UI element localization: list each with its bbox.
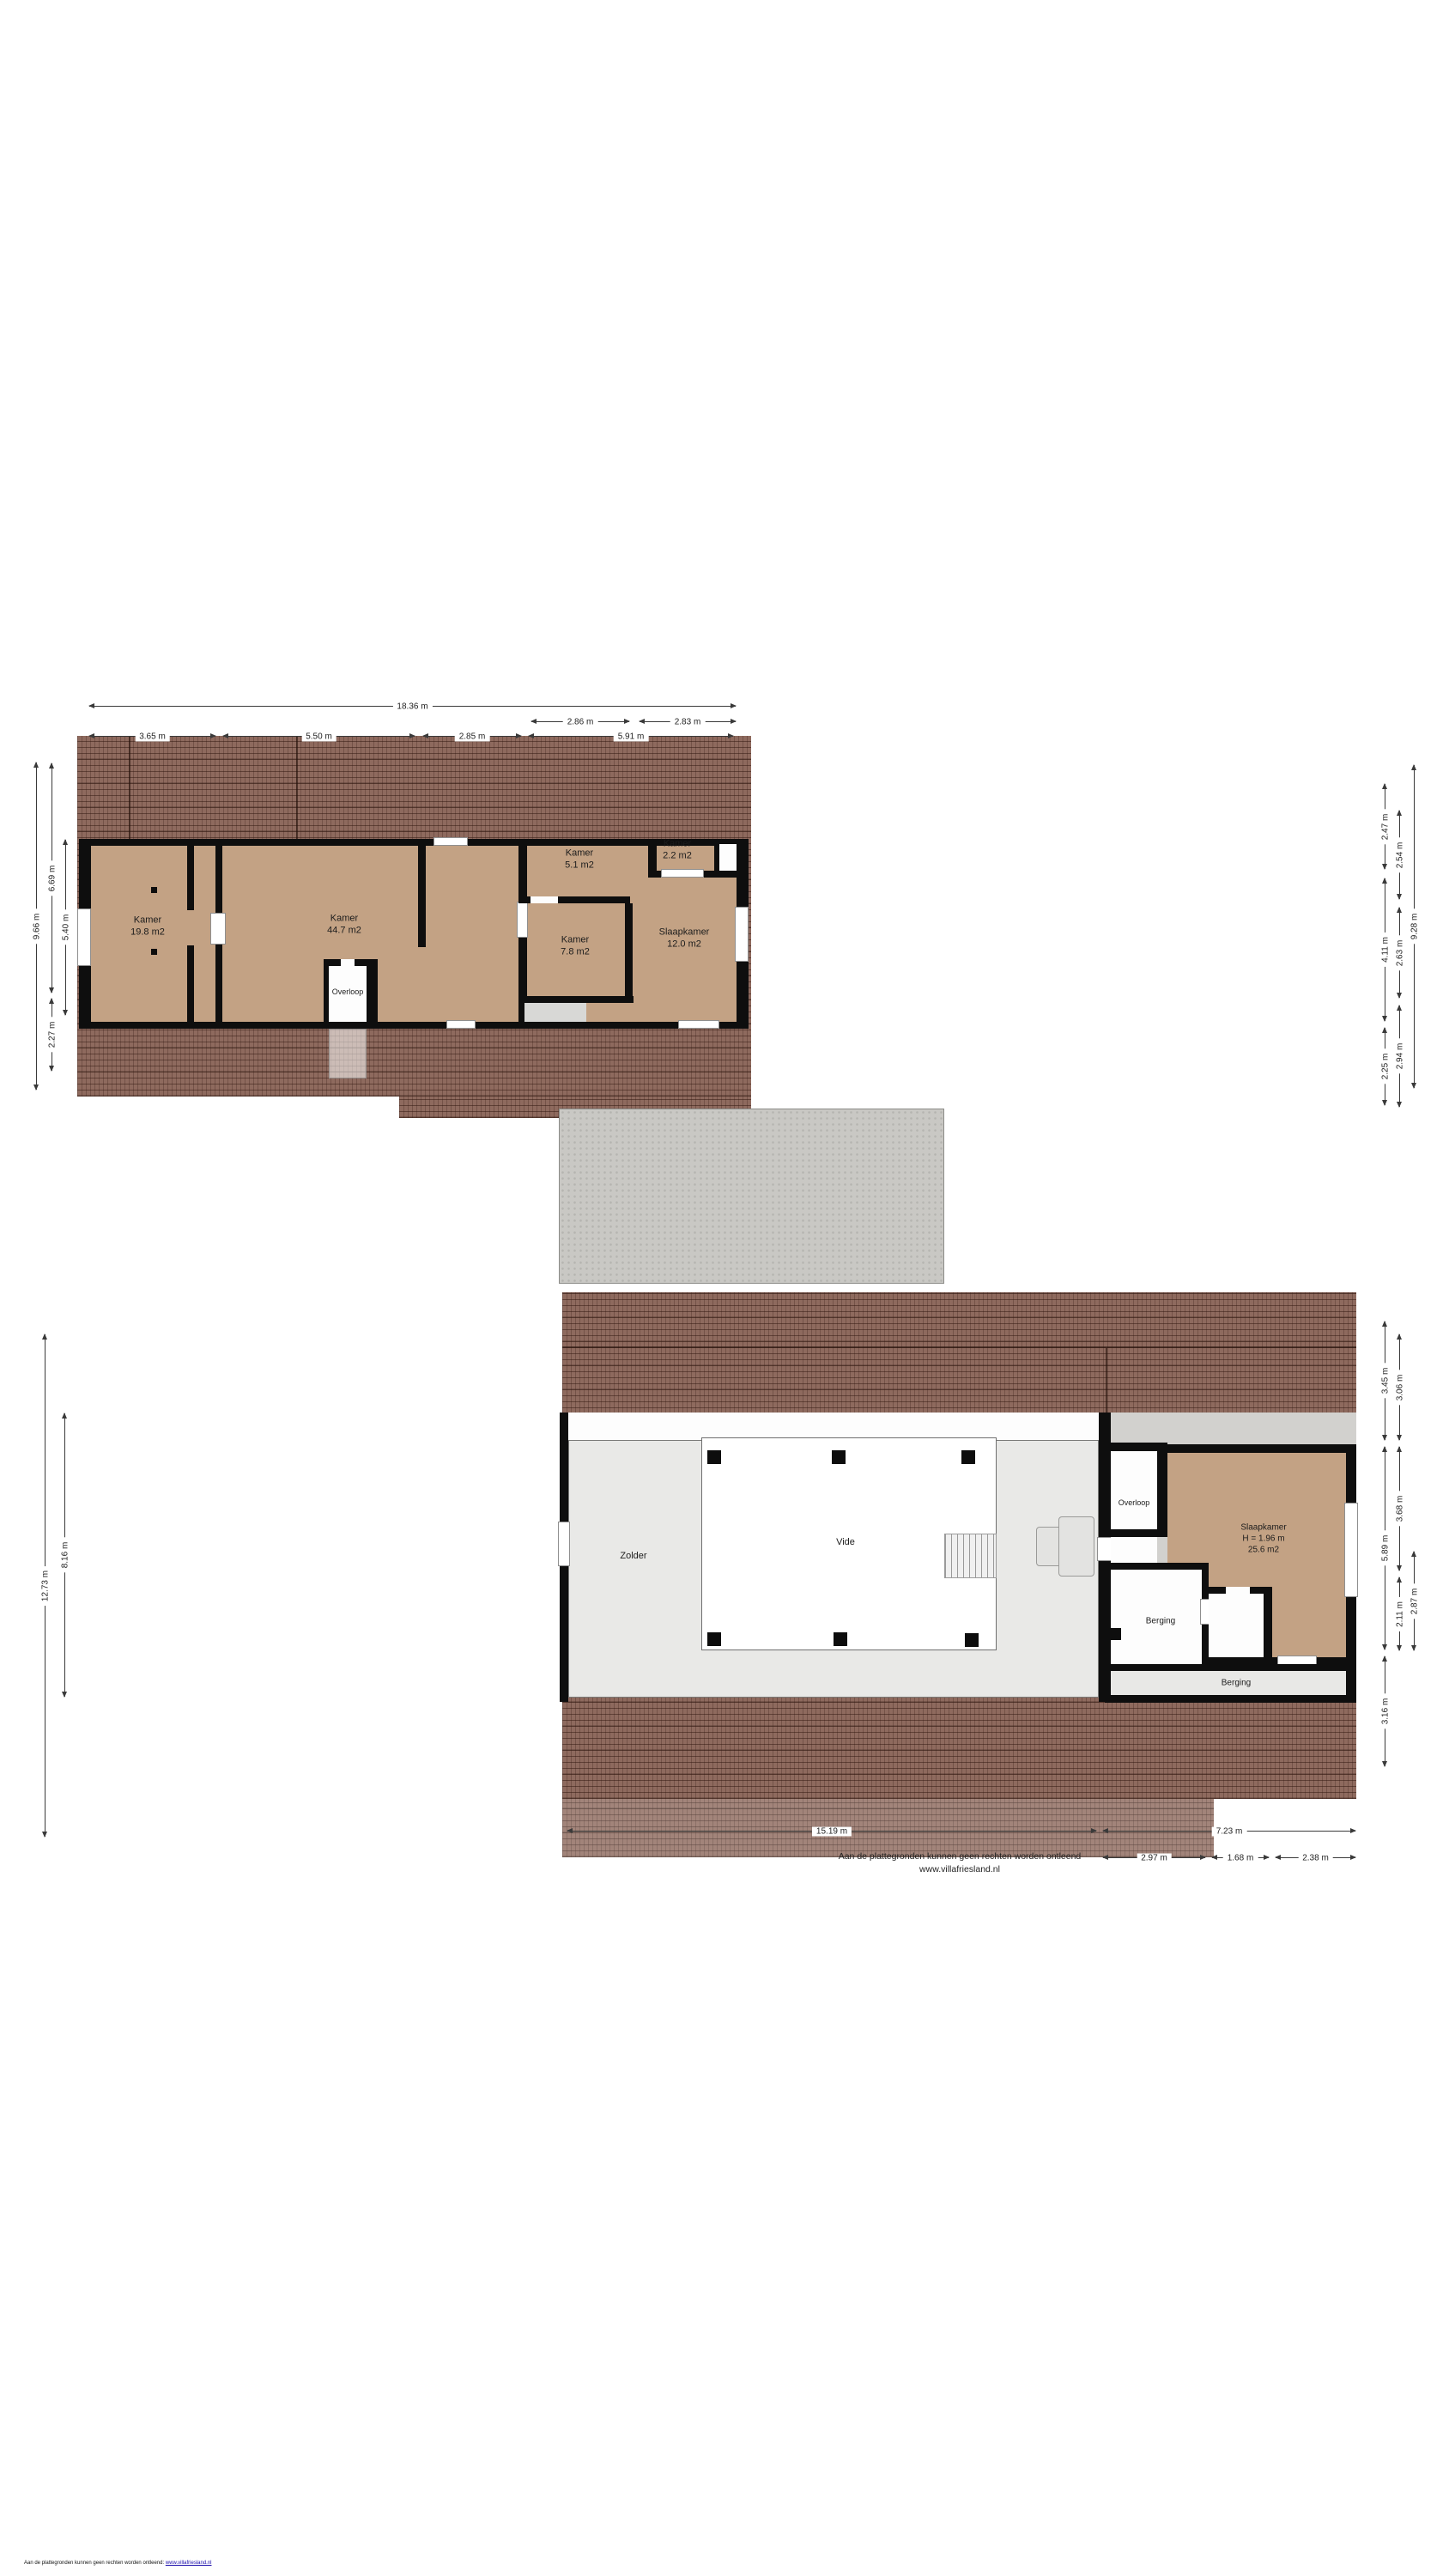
dim-right: 3.16 m	[1379, 1656, 1391, 1767]
wall	[79, 1022, 749, 1029]
dim-left: 6.69 m	[46, 762, 58, 993]
room-label-slaapkamer-12: Slaapkamer 12.0 m2	[659, 927, 710, 951]
dim-right: 5.89 m	[1379, 1446, 1391, 1650]
post	[151, 887, 157, 893]
window	[446, 1020, 476, 1029]
door-opening	[530, 896, 558, 903]
window	[678, 1020, 719, 1029]
room-small	[1209, 1594, 1264, 1664]
dim-left: 2.27 m	[46, 998, 58, 1072]
post	[965, 1633, 979, 1647]
cupboard	[1058, 1516, 1094, 1577]
window	[558, 1522, 570, 1566]
room-label-overloop-lower: Overloop	[1119, 1498, 1150, 1509]
dim-right: 2.11 m	[1394, 1577, 1405, 1651]
dim-right: 2.63 m	[1394, 907, 1405, 999]
dim-right: 2.54 m	[1394, 810, 1405, 900]
room-label-kamer-5-1: Kamer 5.1 m2	[565, 848, 594, 872]
post	[707, 1632, 721, 1646]
dim-right: 4.11 m	[1379, 878, 1391, 1022]
post	[834, 1632, 847, 1646]
wall	[1157, 1444, 1346, 1453]
window	[517, 902, 528, 938]
dim-bottom: 7.23 m	[1102, 1826, 1356, 1837]
roof-ridge-line	[562, 1346, 1356, 1348]
website-link: www.villafriesland.nl	[166, 2561, 212, 2566]
dim-top-sub: 5.50 m	[222, 731, 415, 742]
disclaimer-text: Aan de plattegronden kunnen geen rechten…	[839, 1851, 1082, 1862]
room-label-zolder: Zolder	[620, 1550, 646, 1562]
dim-bottom-sub: 2.38 m	[1275, 1852, 1356, 1863]
dim-top-sub: 2.83 m	[639, 716, 737, 727]
dim-top-total: 18.36 m	[88, 701, 737, 712]
wall-stub	[1111, 1628, 1121, 1640]
wall	[625, 903, 633, 999]
dim-bottom: 15.19 m	[567, 1826, 1097, 1837]
wall	[215, 846, 222, 913]
stairs-ghost	[329, 1029, 367, 1078]
website-text: www.villafriesland.nl	[919, 1864, 1000, 1874]
wall	[518, 844, 527, 902]
dim-bottom-sub: 1.68 m	[1211, 1852, 1270, 1863]
roof-ridge-line	[1106, 1348, 1107, 1413]
dim-left: 9.66 m	[31, 762, 42, 1091]
door	[210, 913, 226, 945]
wall-niche	[719, 844, 737, 871]
wall	[324, 964, 329, 1022]
dim-right: 2.47 m	[1379, 783, 1391, 870]
room-label-berging-2: Berging	[1222, 1678, 1251, 1689]
concrete-area	[559, 1109, 944, 1284]
room-label-berging-1: Berging	[1146, 1616, 1175, 1627]
wall	[1099, 1561, 1111, 1702]
dim-right: 3.06 m	[1394, 1334, 1405, 1441]
dim-left: 12.73 m	[39, 1334, 51, 1838]
wall	[215, 945, 222, 1022]
dim-right: 3.68 m	[1394, 1446, 1405, 1571]
dim-right: 2.87 m	[1409, 1551, 1420, 1651]
dim-left: 5.40 m	[60, 839, 71, 1016]
wall	[1111, 1529, 1167, 1537]
dim-right: 2.94 m	[1394, 1005, 1405, 1108]
window	[433, 837, 468, 846]
dim-top-sub: 3.65 m	[88, 731, 216, 742]
wall	[1107, 1563, 1209, 1570]
dim-right: 2.25 m	[1379, 1027, 1391, 1106]
door-opening	[341, 959, 355, 966]
post	[961, 1450, 975, 1464]
dim-right: 3.45 m	[1379, 1321, 1391, 1441]
landing	[1111, 1537, 1157, 1563]
window	[735, 907, 749, 962]
wall	[367, 964, 378, 1022]
wall	[418, 846, 426, 947]
floorplan-page: Kamer 19.8 m2 Kamer 44.7 m2 Kamer 5.1 m2…	[0, 0, 1449, 2576]
window	[1344, 1503, 1358, 1597]
room-label-kamer-7-8: Kamer 7.8 m2	[561, 934, 590, 959]
room-label-overloop-upper: Overloop	[332, 987, 364, 998]
dim-top-sub: 2.86 m	[530, 716, 630, 727]
wall	[1264, 1587, 1272, 1664]
wall	[1105, 1664, 1346, 1671]
window	[661, 869, 704, 878]
dim-top-sub: 2.85 m	[422, 731, 522, 742]
wall	[187, 846, 194, 910]
corner-note: Aan de plattegronden kunnen geen rechten…	[24, 2561, 212, 2566]
post	[832, 1450, 846, 1464]
stairwell-area	[524, 1003, 586, 1022]
room-label-slaapkamer-25-6: Slaapkamer H = 1.96 m 25.6 m2	[1240, 1522, 1286, 1556]
dim-left: 8.16 m	[59, 1413, 70, 1698]
room-label-vide: Vide	[836, 1536, 855, 1548]
room-label-kamer-2-2: Kamer 2.2 m2	[663, 838, 692, 863]
dim-top-sub: 5.91 m	[528, 731, 734, 742]
stairs	[944, 1534, 997, 1578]
wall	[1105, 1695, 1356, 1703]
post	[151, 949, 157, 955]
dim-bottom-sub: 2.97 m	[1102, 1852, 1206, 1863]
wall	[524, 996, 634, 1003]
roof-ridge-line	[296, 736, 298, 844]
post	[707, 1450, 721, 1464]
wall	[1157, 1451, 1167, 1537]
room-label-kamer-19-8: Kamer 19.8 m2	[130, 914, 165, 939]
dim-right: 9.28 m	[1409, 764, 1420, 1089]
room-overloop-lower	[1111, 1451, 1157, 1529]
door-opening	[1226, 1587, 1250, 1594]
wall	[187, 945, 194, 1022]
wall	[1099, 1413, 1111, 1537]
room-label-kamer-44-7: Kamer 44.7 m2	[327, 913, 361, 938]
window	[77, 908, 91, 966]
roof-ridge-line	[129, 736, 130, 844]
